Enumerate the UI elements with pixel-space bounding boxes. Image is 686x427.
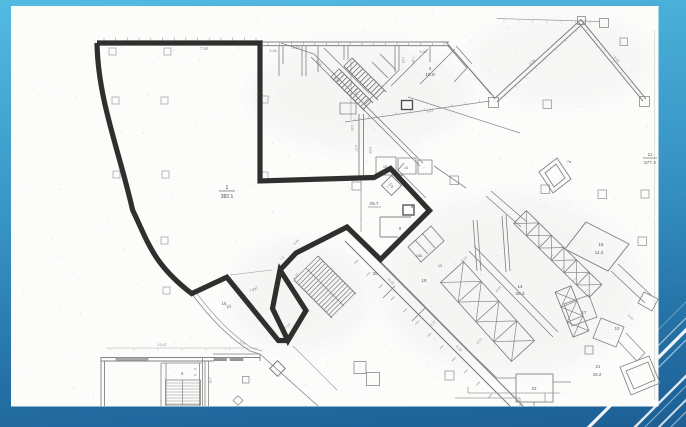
svg-text:4: 4	[181, 371, 184, 377]
svg-text:3.28: 3.28	[269, 49, 276, 53]
svg-text:15: 15	[222, 301, 227, 306]
svg-text:15: 15	[193, 367, 197, 371]
svg-text:11: 11	[648, 152, 653, 157]
svg-text:16: 16	[193, 373, 197, 377]
svg-text:1: 1	[226, 185, 229, 191]
svg-text:26.7: 26.7	[370, 201, 379, 206]
svg-text:22: 22	[532, 386, 537, 391]
svg-text:13.42: 13.42	[158, 343, 167, 347]
svg-text:7.50: 7.50	[200, 46, 209, 51]
svg-text:20: 20	[373, 271, 378, 276]
svg-text:19.2: 19.2	[593, 372, 602, 377]
svg-text:382.1: 382.1	[221, 194, 234, 200]
svg-text:7a: 7a	[567, 160, 571, 164]
svg-text:21: 21	[596, 364, 601, 369]
svg-text:14: 14	[404, 166, 408, 170]
svg-text:577.3: 577.3	[644, 160, 656, 165]
